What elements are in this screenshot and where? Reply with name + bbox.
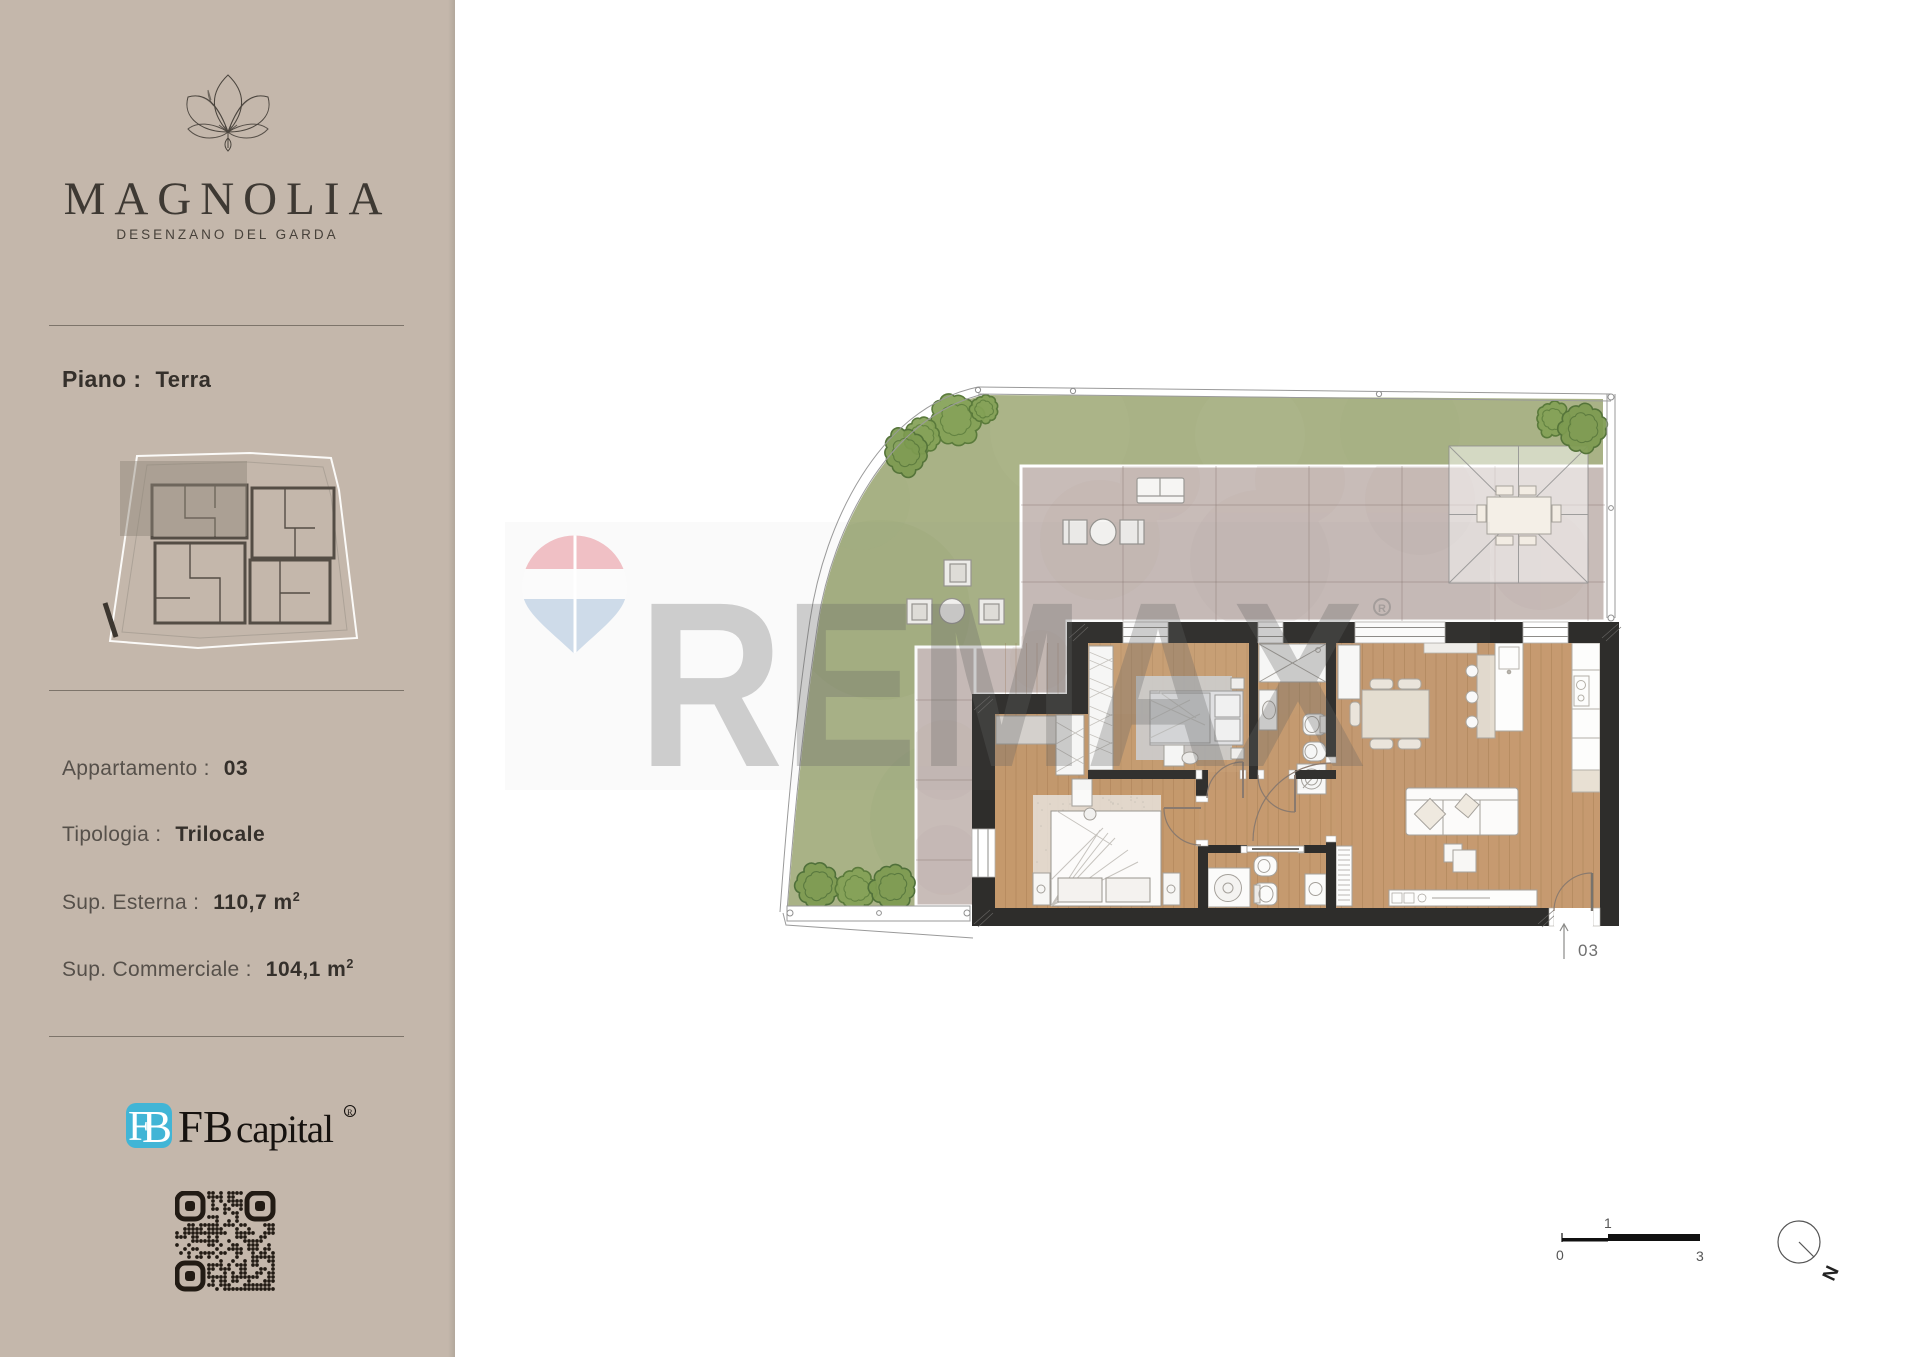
svg-text:REMAX: REMAX	[638, 553, 1365, 817]
svg-text:1: 1	[1604, 1215, 1612, 1231]
svg-text:3: 3	[1696, 1248, 1704, 1264]
svg-text:03: 03	[1578, 941, 1599, 960]
svg-text:R: R	[1378, 603, 1386, 615]
svg-text:0: 0	[1556, 1247, 1564, 1263]
svg-text:N: N	[1817, 1262, 1842, 1283]
